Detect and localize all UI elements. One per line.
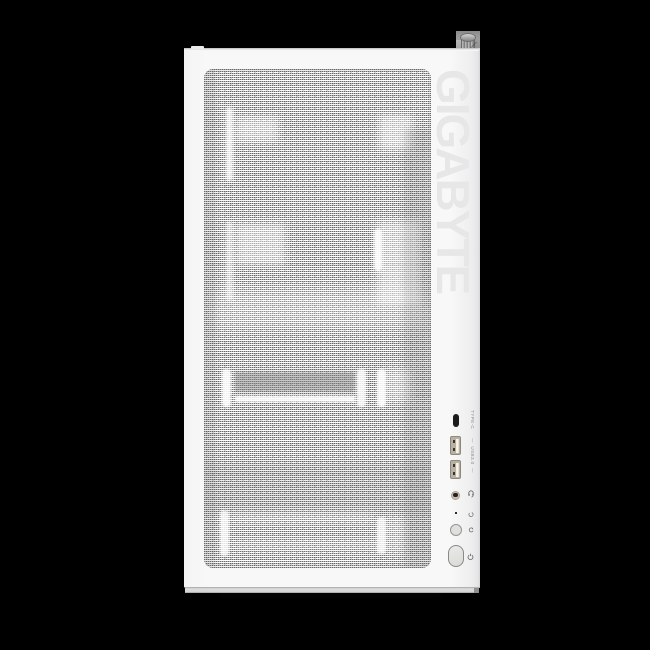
svg-text:TYPE-C: TYPE-C — [470, 410, 475, 430]
svg-text:— USB3.0 —: — USB3.0 — — [470, 438, 475, 473]
